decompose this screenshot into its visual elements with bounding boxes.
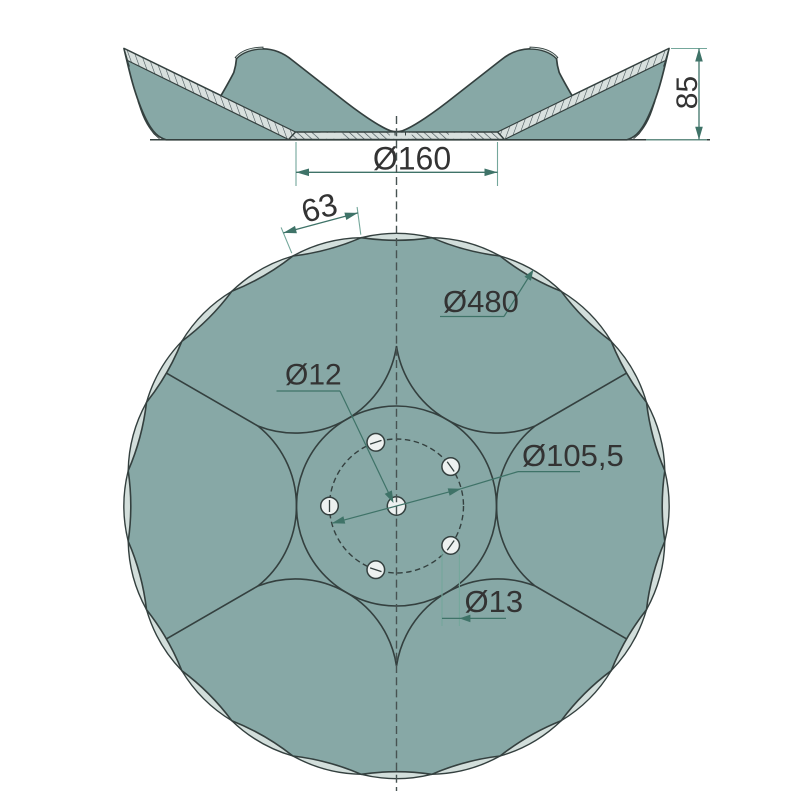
svg-text:Ø160: Ø160 [373, 141, 451, 177]
svg-text:85: 85 [671, 76, 704, 109]
svg-text:Ø12: Ø12 [285, 359, 342, 392]
svg-text:Ø105,5: Ø105,5 [522, 438, 624, 473]
svg-text:Ø480: Ø480 [443, 284, 519, 319]
svg-text:Ø13: Ø13 [465, 584, 524, 619]
